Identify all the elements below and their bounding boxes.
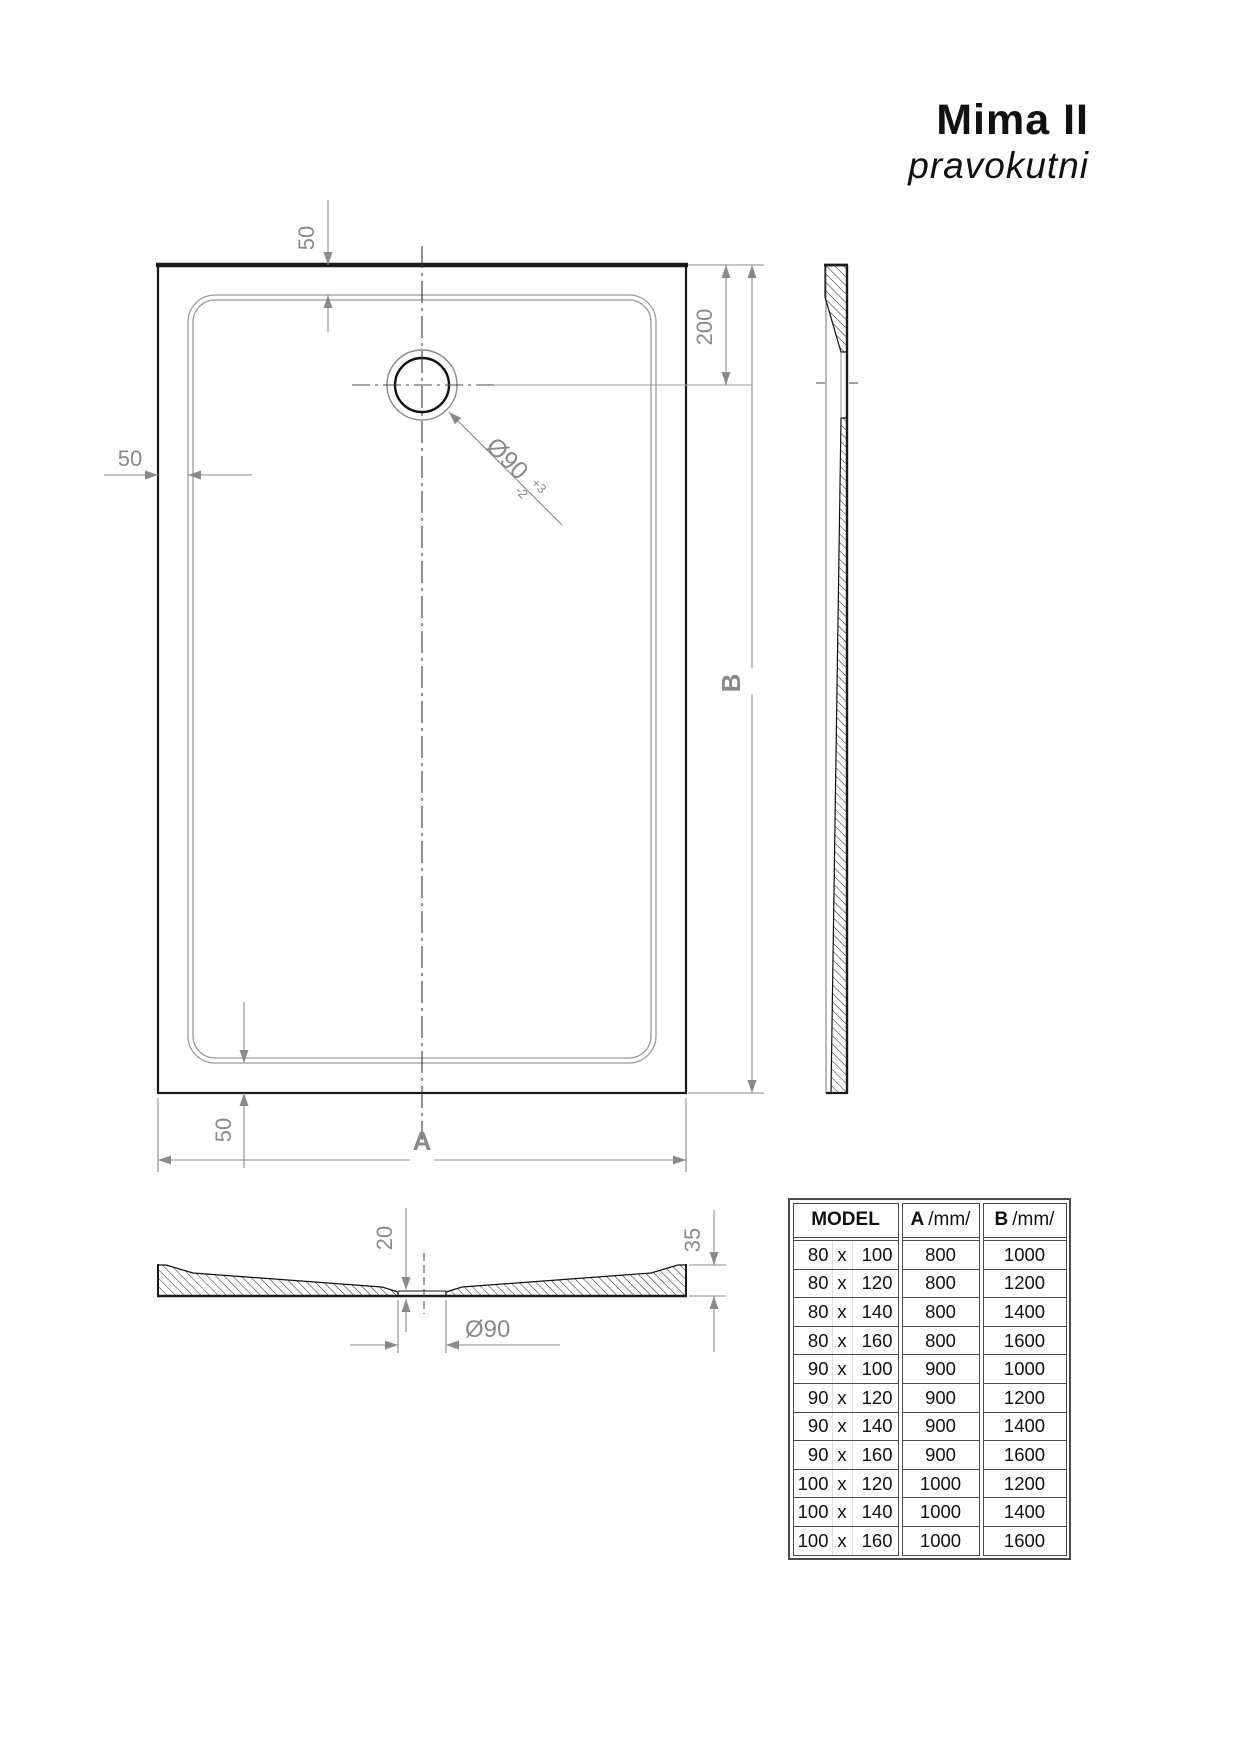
dim-200: 200 [692, 309, 717, 346]
table-row: 80x140 [794, 1297, 898, 1326]
table-cell-b: 1400 [984, 1497, 1066, 1526]
table-cell-b: 1600 [984, 1526, 1066, 1555]
table-cell-b: 1600 [984, 1440, 1066, 1469]
table-row: 80x120 [794, 1269, 898, 1298]
table-cell-b: 1200 [984, 1469, 1066, 1498]
side-view [816, 265, 858, 1093]
side-view-upper-material [825, 265, 847, 352]
dim-bottom-50: 50 [211, 1118, 236, 1142]
table-cell-a: 800 [903, 1326, 979, 1355]
table-cell-a: 900 [903, 1412, 979, 1441]
table-row: 80x100 [794, 1241, 898, 1269]
dim-left-50: 50 [118, 446, 142, 471]
table-cell-b: 1200 [984, 1269, 1066, 1298]
dim-35: 35 [680, 1228, 705, 1252]
table-row: 100x140 [794, 1497, 898, 1526]
model-header: MODEL [811, 1209, 880, 1231]
table-row: 80x160 [794, 1326, 898, 1355]
section-right-material [446, 1265, 686, 1296]
table-row: 100x120 [794, 1469, 898, 1498]
table-cell-a: 1000 [903, 1526, 979, 1555]
table-row: 90x160 [794, 1440, 898, 1469]
table-cell-a: 1000 [903, 1497, 979, 1526]
table-cell-b: 1400 [984, 1297, 1066, 1326]
a-header-label: A [911, 1209, 925, 1231]
table-cell-a: 800 [903, 1241, 979, 1269]
drain-diameter-callout: Ø90 +3 -2 [475, 432, 551, 508]
side-view-lower-material [831, 418, 847, 1093]
size-table: MODEL 80x100 80x120 80x140 80x160 90x100… [788, 1198, 1071, 1560]
dimension-a-column: A /mm/ 800 800 800 800 900 900 900 900 1… [902, 1203, 980, 1556]
model-column: MODEL 80x100 80x120 80x140 80x160 90x100… [793, 1203, 899, 1556]
dim-label-A: A [413, 1126, 432, 1156]
table-cell-b: 1600 [984, 1326, 1066, 1355]
top-view [156, 246, 752, 1140]
table-cell-b: 1000 [984, 1354, 1066, 1383]
drawing-sheet: Mima II pravokutni [0, 0, 1241, 1754]
dim-label-B: B [716, 674, 746, 693]
top-view-dimensions [104, 200, 764, 1172]
drain-tolerance-upper: +3 [528, 475, 549, 496]
dim-top-50: 50 [294, 226, 319, 250]
table-cell-a: 800 [903, 1269, 979, 1298]
section-left-material [158, 1265, 398, 1296]
table-cell-b: 1400 [984, 1412, 1066, 1441]
dim-20: 20 [372, 1226, 397, 1250]
table-cell-a: 1000 [903, 1469, 979, 1498]
b-header-unit: /mm/ [1012, 1209, 1054, 1231]
table-cell-a: 800 [903, 1297, 979, 1326]
table-row: 90x120 [794, 1383, 898, 1412]
table-cell-a: 900 [903, 1354, 979, 1383]
table-cell-a: 900 [903, 1440, 979, 1469]
top-view-dimension-labels: 50 50 200 B 50 A Ø90 +3 -2 [118, 226, 746, 1156]
section-view [157, 1253, 687, 1314]
table-cell-a: 900 [903, 1383, 979, 1412]
table-row: 100x160 [794, 1526, 898, 1555]
b-header-label: B [995, 1209, 1009, 1231]
a-header-unit: /mm/ [928, 1209, 970, 1231]
table-cell-b: 1200 [984, 1383, 1066, 1412]
dimension-b-column: B /mm/ 1000 1200 1400 1600 1000 1200 140… [983, 1203, 1067, 1556]
drain-diameter: Ø90 [480, 432, 533, 485]
table-row: 90x140 [794, 1412, 898, 1441]
dim-section-drain-diameter: Ø90 [465, 1316, 510, 1343]
table-cell-b: 1000 [984, 1241, 1066, 1269]
drain-tolerance-lower: -2 [512, 483, 531, 502]
table-row: 90x100 [794, 1354, 898, 1383]
